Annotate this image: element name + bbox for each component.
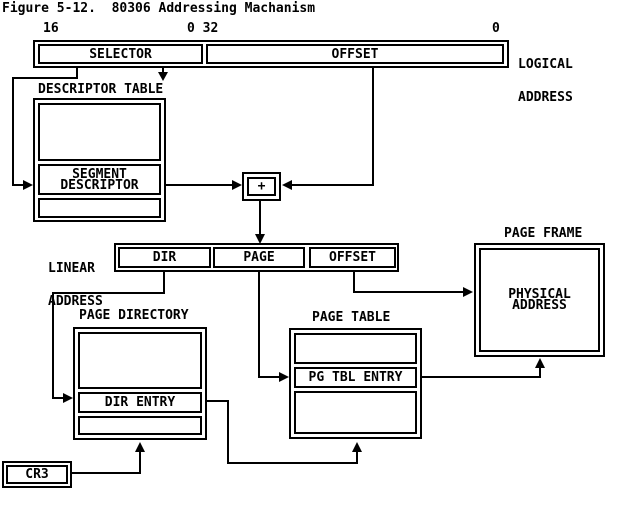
- cr3-inner-box: CR3: [6, 465, 68, 484]
- pg-tbl-entry-cell: PG TBL ENTRY: [294, 367, 417, 388]
- page-directory-empty-slot-bottom: [78, 416, 202, 435]
- linear-address-caption-line1: LINEAR: [48, 263, 103, 274]
- page-table-empty-slot-top: [294, 333, 417, 364]
- page-label: PAGE: [243, 250, 274, 265]
- descriptor-table-title: DESCRIPTOR TABLE: [38, 84, 163, 95]
- physical-address-line2: ADDRESS: [512, 300, 567, 311]
- page-directory-title: PAGE DIRECTORY: [79, 310, 189, 321]
- diagram-80386-addressing: Figure 5-12. 80306 Addressing Machanism …: [0, 0, 640, 516]
- selector-label: SELECTOR: [89, 47, 152, 62]
- page-table-title: PAGE TABLE: [312, 312, 390, 323]
- segment-descriptor-line2: DESCRIPTOR: [60, 180, 138, 191]
- adder-inner-box: +: [247, 177, 276, 196]
- offset-to-adder-wire: [282, 68, 373, 190]
- dir-field: DIR: [118, 247, 211, 268]
- offset-field: OFFSET: [206, 44, 504, 64]
- dir-label: DIR: [153, 250, 176, 265]
- page-directory-empty-slot-top: [78, 332, 202, 389]
- logical-address-caption: LOGICAL ADDRESS: [518, 37, 573, 125]
- cr3-to-page-directory-wire: [72, 442, 145, 473]
- dir-entry-label: DIR ENTRY: [105, 395, 175, 410]
- logical-address-caption-line2: ADDRESS: [518, 92, 573, 103]
- descriptor-table-empty-slot-bottom: [38, 198, 161, 218]
- bit-label-0: 0: [492, 23, 500, 34]
- descriptor-table-empty-slot-top: [38, 103, 161, 161]
- logical-address-caption-line1: LOGICAL: [518, 59, 573, 70]
- dir-entry-cell: DIR ENTRY: [78, 392, 202, 413]
- page-table-empty-slot-bottom: [294, 391, 417, 434]
- figure-title: Figure 5-12. 80306 Addressing Machanism: [2, 3, 315, 14]
- bit-label-0-32: 0 32: [187, 23, 218, 34]
- linear-offset-label: OFFSET: [329, 250, 376, 265]
- segment-descriptor-cell: SEGMENT DESCRIPTOR: [38, 164, 161, 195]
- selector-to-descriptor-table-arrow: [158, 68, 168, 81]
- selector-field: SELECTOR: [38, 44, 203, 64]
- pg-tbl-entry-label: PG TBL ENTRY: [309, 370, 403, 385]
- offset-label: OFFSET: [332, 47, 379, 62]
- adder-to-linear-address-wire: [255, 201, 265, 244]
- cr3-label: CR3: [25, 467, 48, 482]
- physical-address-cell: PHYSICAL ADDRESS: [479, 248, 600, 352]
- plus-symbol: +: [258, 179, 266, 194]
- pg-tbl-entry-to-page-frame-wire: [422, 358, 545, 377]
- page-frame-title: PAGE FRAME: [504, 228, 582, 239]
- page-to-page-table-wire: [259, 271, 289, 382]
- page-field: PAGE: [213, 247, 305, 268]
- segment-descriptor-to-adder-wire: [166, 180, 242, 190]
- bit-label-16: 16: [43, 23, 59, 34]
- offset-to-page-frame-wire: [354, 271, 473, 297]
- linear-offset-field: OFFSET: [309, 247, 396, 268]
- linear-address-caption-line2: ADDRESS: [48, 296, 103, 307]
